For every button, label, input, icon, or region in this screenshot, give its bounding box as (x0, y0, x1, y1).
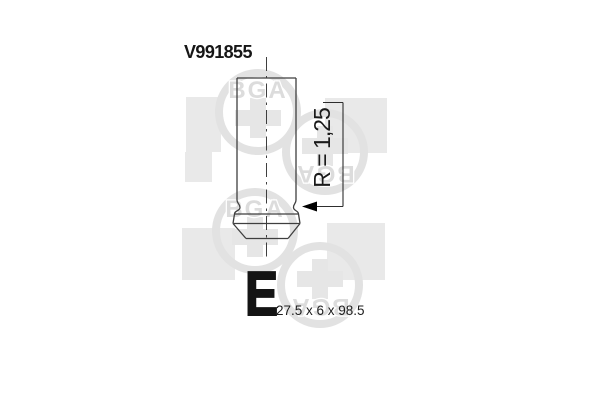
bga-watermark: BGA BGA BGA BGA (182, 73, 387, 324)
bga-logo-cross-icon (232, 229, 278, 245)
watermark-square (185, 152, 212, 182)
part-number: V991855 (184, 43, 252, 61)
drawing-canvas: BGA BGA BGA BGA (0, 0, 600, 400)
valve-type-letter: E (245, 264, 278, 326)
bga-logo-cross-icon (297, 271, 343, 287)
valve-dimensions: 27.5 x 6 x 98.5 (276, 304, 365, 318)
bga-logo-cross-icon (235, 110, 281, 126)
radius-dimension-label: R = 1,25 (310, 103, 334, 193)
valve-technical-drawing-page: BGA BGA BGA BGA (0, 0, 600, 400)
leader-arrow-icon (302, 202, 317, 212)
